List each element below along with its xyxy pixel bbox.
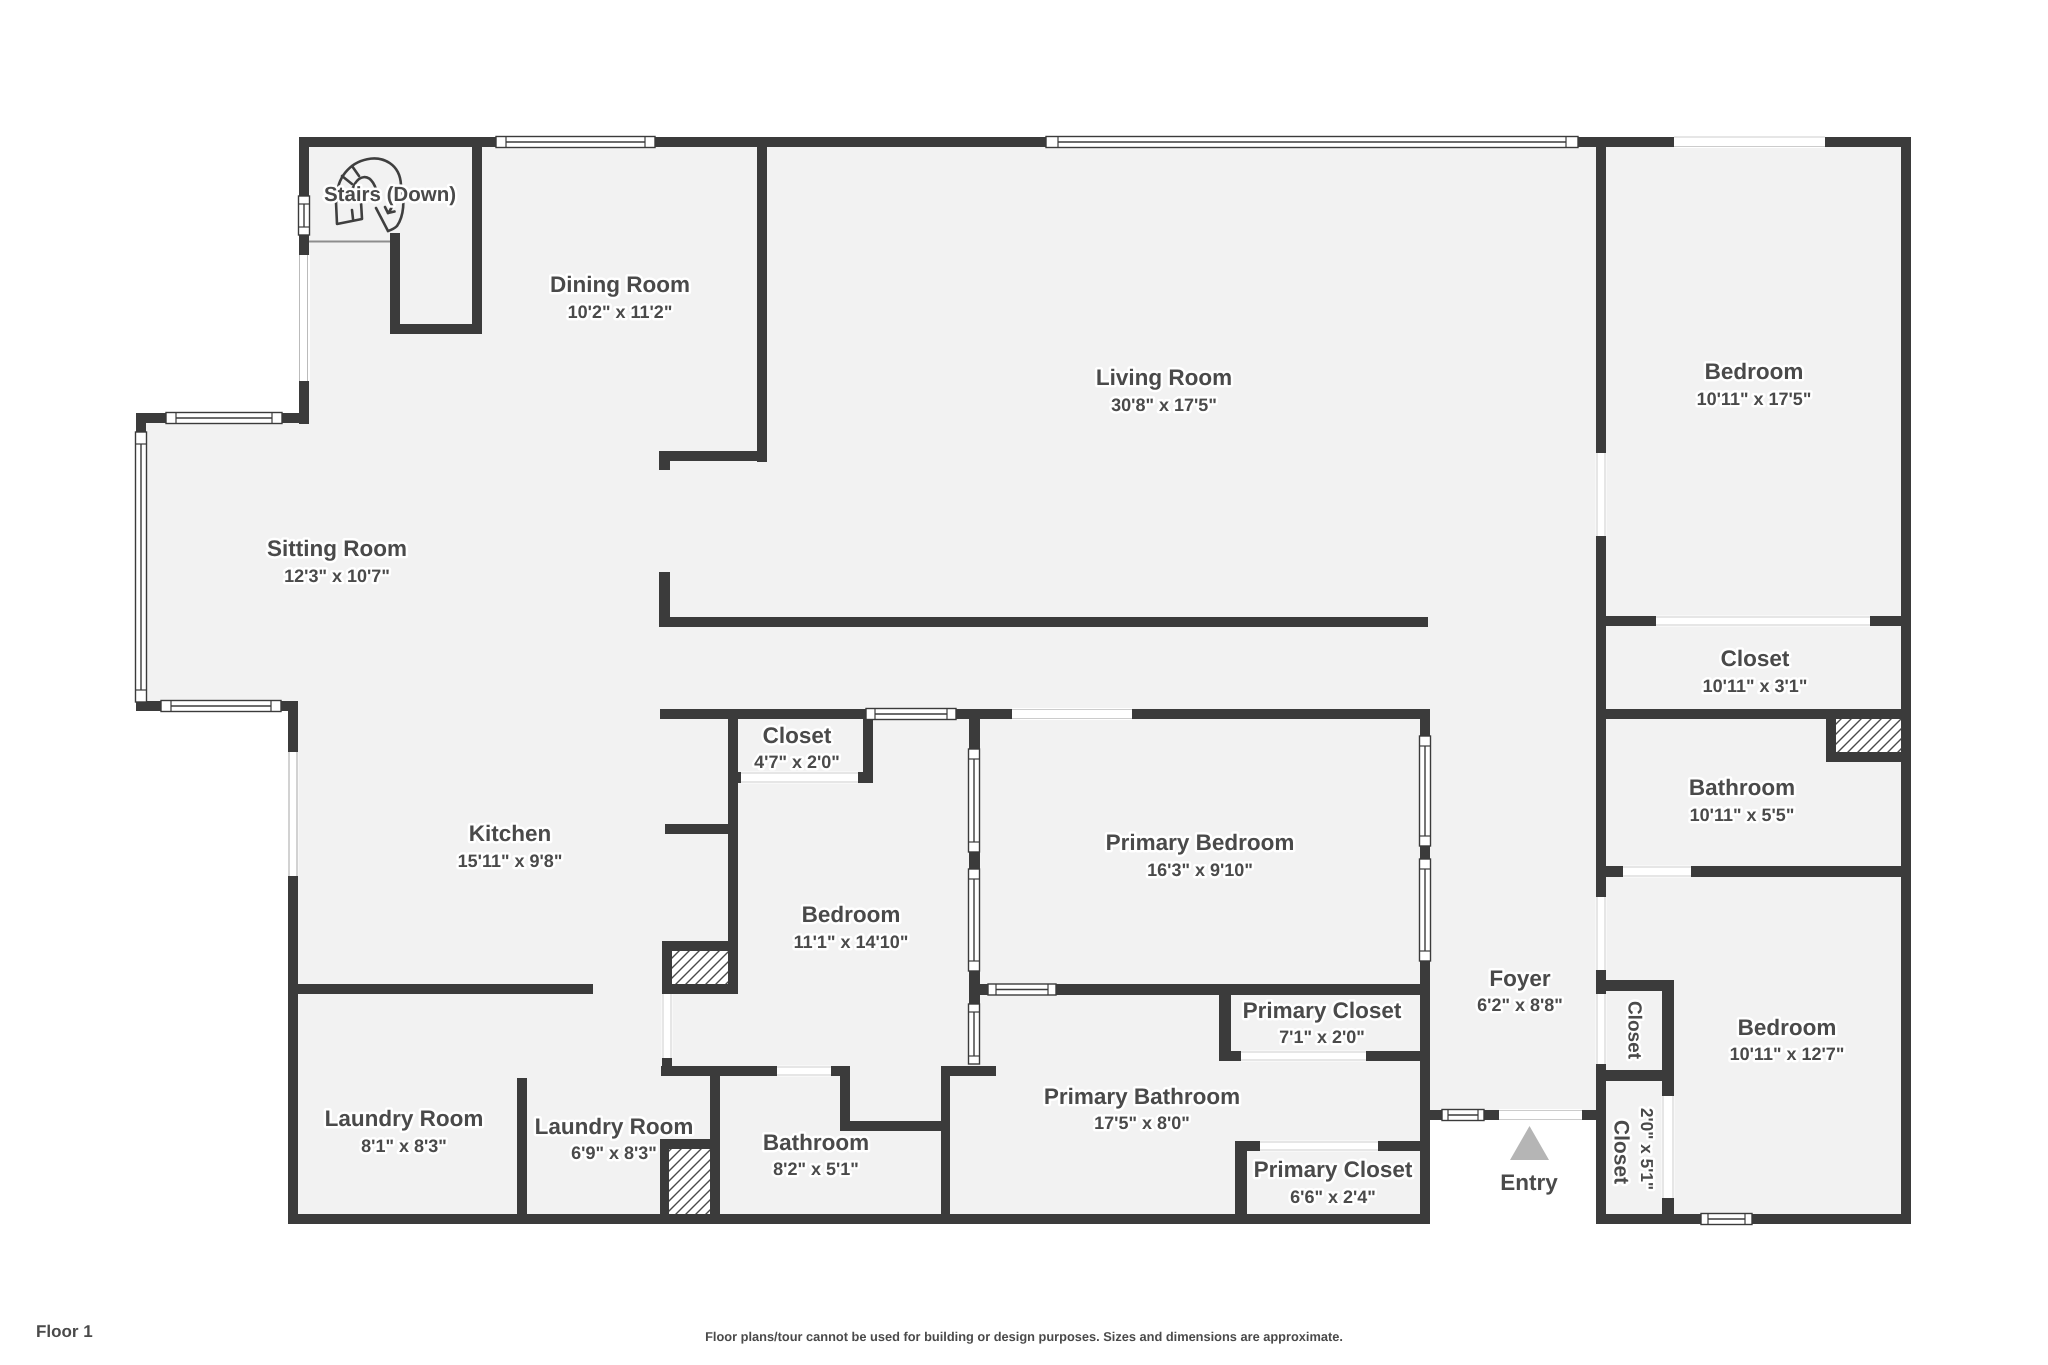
svg-text:15'11" x 9'8": 15'11" x 9'8" bbox=[458, 851, 563, 871]
svg-text:10'11" x 5'5": 10'11" x 5'5" bbox=[1690, 805, 1795, 825]
svg-text:Bedroom: Bedroom bbox=[1738, 1015, 1837, 1040]
svg-text:8'1" x 8'3": 8'1" x 8'3" bbox=[361, 1136, 447, 1156]
svg-text:Bathroom: Bathroom bbox=[763, 1130, 869, 1155]
svg-text:30'8" x 17'5": 30'8" x 17'5" bbox=[1111, 395, 1217, 415]
svg-text:Closet: Closet bbox=[1721, 646, 1790, 671]
svg-text:Stairs (Down): Stairs (Down) bbox=[324, 183, 456, 206]
svg-text:16'3" x 9'10": 16'3" x 9'10" bbox=[1147, 860, 1253, 880]
svg-text:10'2" x 11'2": 10'2" x 11'2" bbox=[568, 302, 673, 322]
svg-text:Bedroom: Bedroom bbox=[1705, 359, 1804, 384]
svg-text:Living Room: Living Room bbox=[1096, 365, 1232, 390]
svg-text:17'5" x 8'0": 17'5" x 8'0" bbox=[1094, 1113, 1190, 1133]
svg-text:4'7" x 2'0": 4'7" x 2'0" bbox=[754, 752, 840, 772]
svg-text:Primary Bedroom: Primary Bedroom bbox=[1106, 830, 1295, 855]
svg-text:6'6" x 2'4": 6'6" x 2'4" bbox=[1290, 1187, 1376, 1207]
svg-text:11'1" x 14'10": 11'1" x 14'10" bbox=[794, 932, 909, 952]
svg-text:Dining Room: Dining Room bbox=[550, 272, 690, 297]
svg-text:Kitchen: Kitchen bbox=[469, 821, 552, 846]
svg-text:Primary Closet: Primary Closet bbox=[1243, 998, 1402, 1023]
svg-text:2'0" x 5'1": 2'0" x 5'1" bbox=[1637, 1108, 1657, 1190]
svg-text:Floor plans/tour cannot be use: Floor plans/tour cannot be used for buil… bbox=[705, 1329, 1343, 1344]
svg-text:12'3" x 10'7": 12'3" x 10'7" bbox=[284, 566, 390, 586]
svg-text:8'2" x 5'1": 8'2" x 5'1" bbox=[773, 1159, 859, 1179]
svg-text:10'11" x 12'7": 10'11" x 12'7" bbox=[1730, 1044, 1845, 1064]
svg-text:6'2" x 8'8": 6'2" x 8'8" bbox=[1477, 995, 1563, 1015]
svg-text:Closet: Closet bbox=[1610, 1120, 1633, 1184]
svg-text:Foyer: Foyer bbox=[1489, 966, 1551, 991]
svg-text:Bathroom: Bathroom bbox=[1689, 775, 1795, 800]
svg-text:Entry: Entry bbox=[1500, 1170, 1558, 1195]
svg-text:6'9" x 8'3": 6'9" x 8'3" bbox=[571, 1143, 657, 1163]
svg-text:7'1" x 2'0": 7'1" x 2'0" bbox=[1279, 1027, 1365, 1047]
svg-text:Laundry Room: Laundry Room bbox=[535, 1114, 694, 1139]
svg-text:Sitting Room: Sitting Room bbox=[267, 536, 407, 561]
svg-text:Floor 1: Floor 1 bbox=[36, 1322, 93, 1341]
svg-text:Laundry Room: Laundry Room bbox=[325, 1106, 484, 1131]
svg-text:10'11" x 17'5": 10'11" x 17'5" bbox=[1697, 389, 1812, 409]
svg-text:Closet: Closet bbox=[1624, 1001, 1645, 1060]
svg-text:Primary Closet: Primary Closet bbox=[1254, 1157, 1413, 1182]
svg-text:Closet: Closet bbox=[763, 723, 832, 748]
svg-text:10'11" x 3'1": 10'11" x 3'1" bbox=[1703, 676, 1808, 696]
svg-text:Bedroom: Bedroom bbox=[802, 902, 901, 927]
svg-text:Primary Bathroom: Primary Bathroom bbox=[1044, 1084, 1240, 1109]
